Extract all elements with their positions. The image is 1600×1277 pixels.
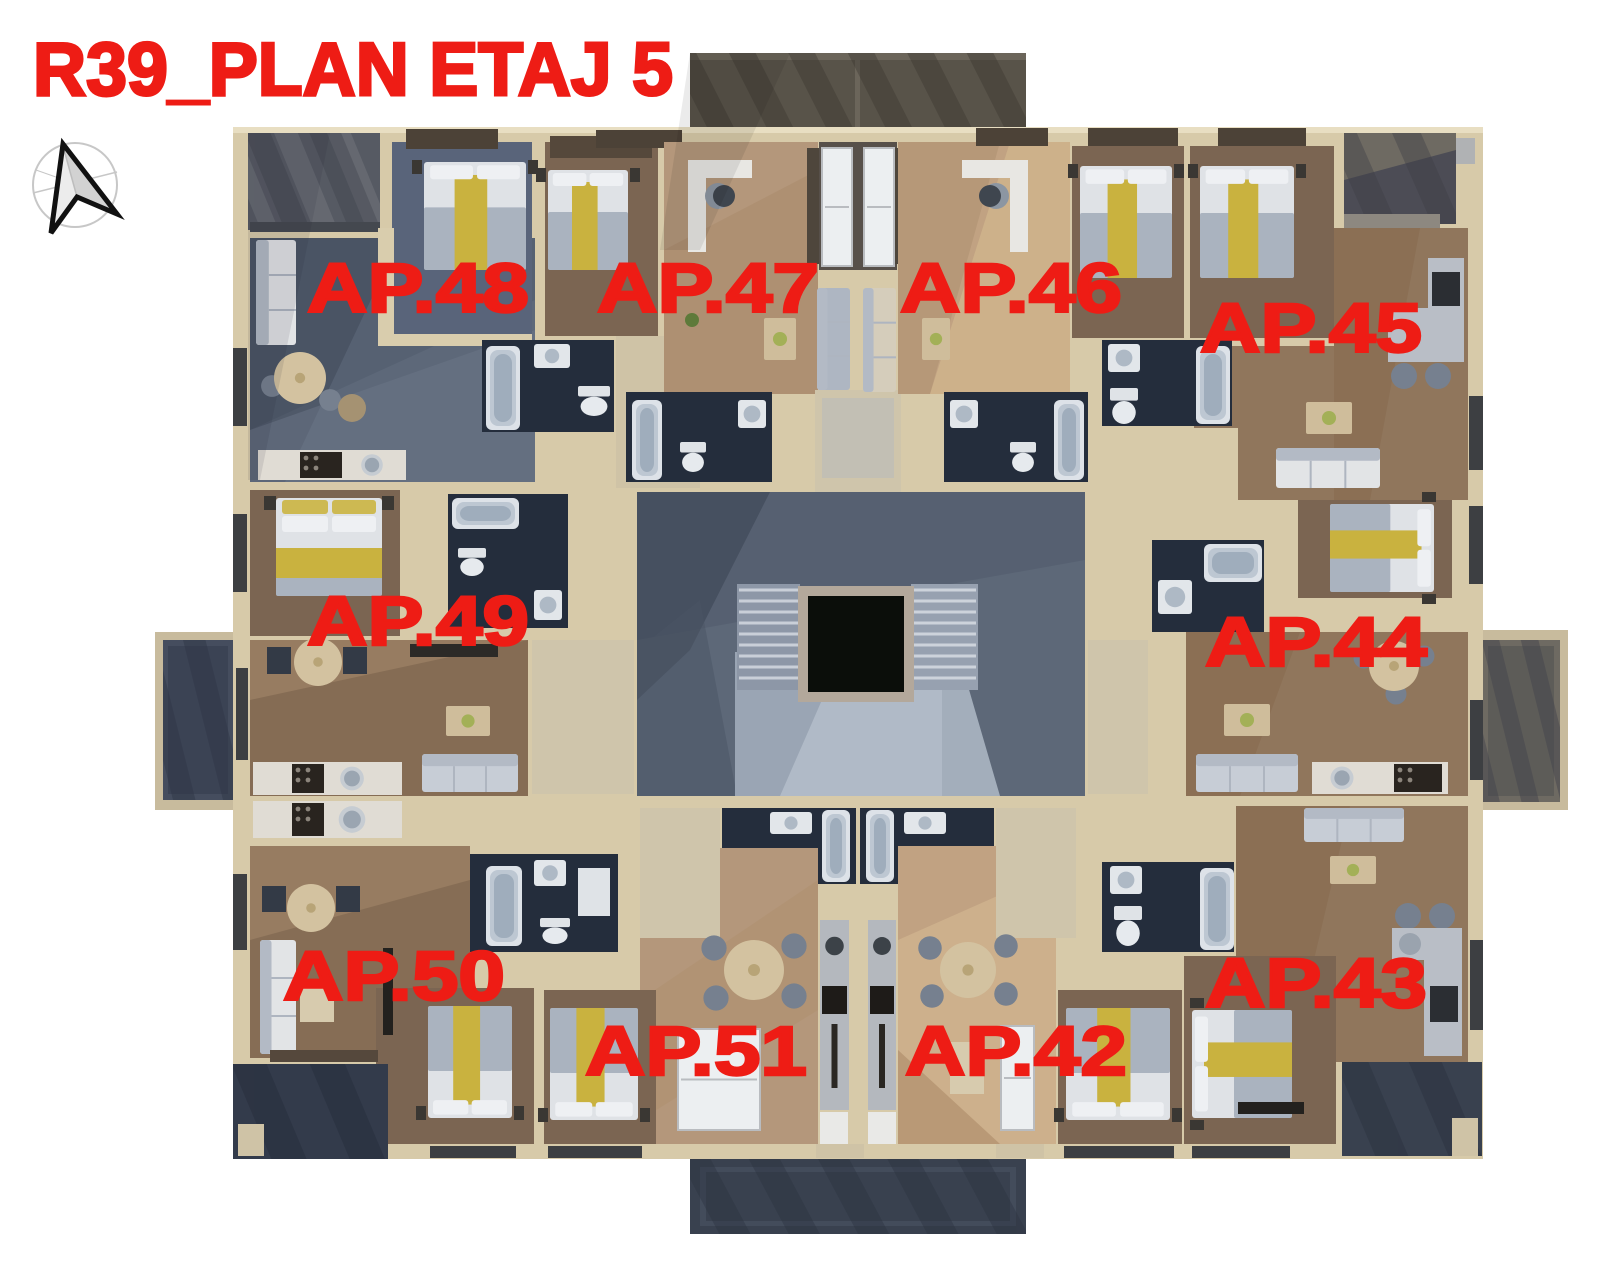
svg-text:AP.43: AP.43 [1205, 944, 1427, 1022]
svg-text:AP.49: AP.49 [307, 582, 529, 660]
svg-text:AP.50: AP.50 [283, 937, 505, 1015]
svg-text:AP.48: AP.48 [307, 249, 529, 327]
svg-text:AP.44: AP.44 [1205, 603, 1427, 681]
svg-text:AP.47: AP.47 [597, 249, 819, 327]
svg-text:AP.51: AP.51 [585, 1012, 807, 1090]
svg-text:AP.46: AP.46 [900, 249, 1122, 327]
svg-text:AP.45: AP.45 [1200, 289, 1422, 367]
svg-text:AP.42: AP.42 [905, 1012, 1127, 1090]
svg-text:R39_PLAN ETAJ 5: R39_PLAN ETAJ 5 [33, 27, 673, 111]
